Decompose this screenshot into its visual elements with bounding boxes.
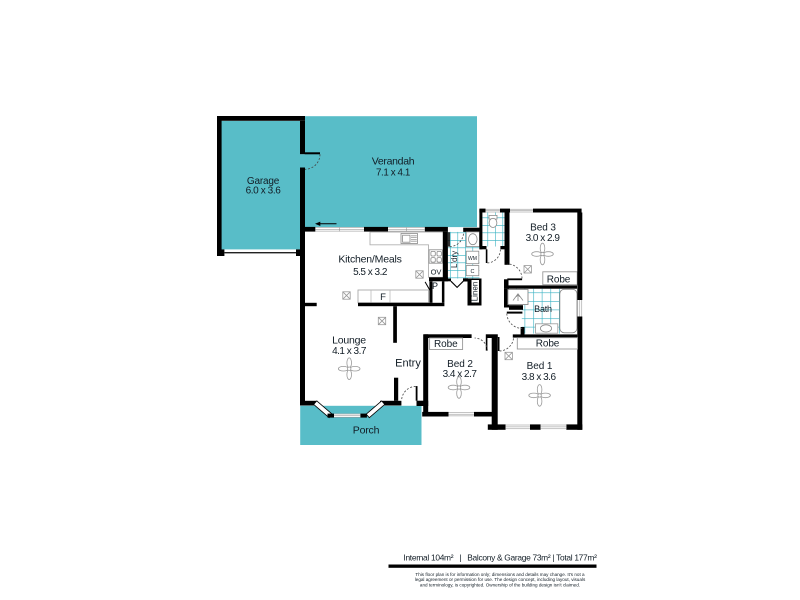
svg-text:4.1 x 3.7: 4.1 x 3.7	[332, 346, 367, 357]
svg-text:Bath: Bath	[534, 304, 552, 314]
svg-text:F: F	[380, 292, 386, 303]
svg-text:Linen: Linen	[471, 282, 480, 302]
svg-text:Verandah: Verandah	[372, 156, 415, 168]
svg-text:C: C	[471, 269, 475, 275]
svg-text:Bed 1: Bed 1	[527, 361, 553, 372]
svg-text:5.5 x 3.2: 5.5 x 3.2	[353, 267, 388, 278]
svg-text:Robe: Robe	[434, 339, 458, 350]
svg-text:Internal 104m² | Balcony &: Internal 104m² | Balcony & Garage 73m² |…	[403, 552, 597, 562]
svg-text:Robe: Robe	[536, 339, 560, 350]
svg-text:3.0 x 2.9: 3.0 x 2.9	[526, 233, 561, 244]
svg-text:Porch: Porch	[353, 424, 380, 436]
svg-text:Kitchen/Meals: Kitchen/Meals	[338, 254, 401, 266]
svg-text:WM: WM	[468, 256, 477, 262]
svg-text:P: P	[432, 281, 438, 291]
svg-text:and terminology, is copyrighte: and terminology, is copyrighted. Ownersh…	[420, 583, 580, 588]
svg-text:Robe: Robe	[547, 275, 571, 286]
svg-text:6.0 x 3.6: 6.0 x 3.6	[246, 186, 282, 197]
svg-text:Lounge: Lounge	[332, 335, 366, 347]
svg-text:This floor plan is for informa: This floor plan is for information only;…	[415, 572, 585, 577]
svg-text:Entry: Entry	[395, 357, 421, 369]
svg-text:legal agreement or permission: legal agreement or permission for use. T…	[415, 577, 586, 582]
svg-text:3.8 x 3.6: 3.8 x 3.6	[522, 372, 557, 383]
svg-text:Bed 3: Bed 3	[530, 222, 556, 233]
svg-text:L'dry: L'dry	[450, 251, 459, 268]
svg-text:OV: OV	[431, 268, 442, 277]
svg-text:7.1 x 4.1: 7.1 x 4.1	[376, 168, 410, 179]
